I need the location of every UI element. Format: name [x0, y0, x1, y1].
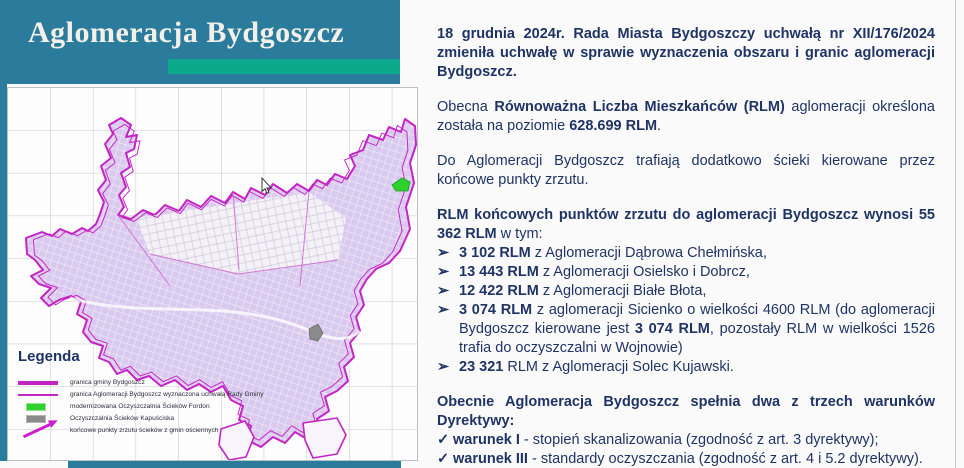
text: w tym: [497, 226, 543, 242]
map-panel: Legenda granica gminy Bydgoszczgranica A… [7, 87, 418, 461]
bullet-item: ➢23 321 RLM z Aglomeracji Solec Kujawski… [437, 358, 935, 377]
text-bold: Obecnie Aglomeracja Bydgoszcz spełnia dw… [437, 394, 935, 429]
bullet-text: warunek I - stopień skanalizowania (zgod… [453, 431, 935, 450]
bullet-text: 3 074 RLM z aglomeracji Sicienko o wielk… [459, 301, 935, 358]
paragraph: Obecnie Aglomeracja Bydgoszcz spełnia dw… [437, 393, 935, 431]
text: z Aglomeracji Dąbrowa Chełmińska, [531, 245, 767, 261]
text-bold: 628.699 RLM [569, 118, 657, 134]
legend-item: modernizowana Oczyszczalnia Ścieków Ford… [18, 401, 348, 412]
bullet-text: 12 422 RLM z Aglomeracji Białe Błota, [459, 282, 935, 301]
paragraph: Do Aglomeracji Bydgoszcz trafiają dodatk… [437, 152, 935, 190]
bullet-text: 13 443 RLM z Aglomeracji Osielsko i Dobr… [459, 263, 935, 282]
bullet-text: 23 321 RLM z Aglomeracji Solec Kujawski. [459, 358, 935, 377]
text-bold: warunek I [453, 432, 520, 448]
title-accent-bar [168, 59, 400, 74]
bullet-text: 3 102 RLM z Aglomeracji Dąbrowa Chełmińs… [459, 244, 935, 263]
map-legend: Legenda granica gminy Bydgoszczgranica A… [18, 348, 348, 437]
legend-item-label: granica Aglomeracji Bydgoszcz wyznaczona… [70, 391, 264, 398]
arrow-bullet-icon: ➢ [437, 301, 459, 358]
content-panel: 18 grudnia 2024r. Rada Miasta Bydgoszczy… [420, 0, 956, 468]
text: - stopień skanalizowania (zgodność z art… [520, 432, 879, 448]
legend-title: Legenda [18, 348, 348, 365]
text: RLM z Aglomeracji Solec Kujawski. [503, 359, 733, 375]
check-item: ✓warunek I - stopień skanalizowania (zgo… [437, 431, 935, 450]
text: - standardy oczyszczania (zgodność z art… [528, 451, 923, 467]
text-bold: 18 grudnia 2024r. Rada Miasta Bydgoszczy… [437, 26, 935, 80]
bullet-item: ➢3 102 RLM z Aglomeracji Dąbrowa Chełmiń… [437, 244, 935, 263]
legend-item: granica Aglomeracji Bydgoszcz wyznaczona… [18, 389, 348, 400]
gray-rect-icon [18, 415, 70, 423]
left-edge-strip [0, 84, 7, 461]
text: z Aglomeracji Osielsko i Dobrcz, [539, 264, 750, 280]
legend-item: granica gminy Bydgoszcz [18, 377, 348, 388]
paragraph: RLM końcowych punktów zrzutu do aglomera… [437, 206, 935, 244]
text-bold: 12 422 RLM [459, 283, 539, 299]
bullet-text: warunek III - standardy oczyszczania (zg… [453, 450, 935, 468]
magenta-arrow-icon [18, 429, 70, 432]
arrow-bullet-icon: ➢ [437, 358, 459, 377]
check-icon: ✓ [437, 431, 453, 450]
arrow-bullet-icon: ➢ [437, 244, 459, 263]
text-bold: warunek III [453, 451, 528, 467]
thick-magenta-line-icon [18, 381, 70, 385]
paragraph: 18 grudnia 2024r. Rada Miasta Bydgoszczy… [437, 25, 935, 82]
check-icon: ✓ [437, 450, 453, 468]
title-block: Aglomeracja Bydgoszcz [0, 0, 400, 84]
text-bold: 3 074 RLM [459, 302, 532, 318]
legend-item-label: końcowe punkty zrzutu ścieków z gmin ośc… [70, 427, 218, 434]
text-bold: 23 321 [459, 359, 503, 375]
bullet-item: ➢3 074 RLM z aglomeracji Sicienko o wiel… [437, 301, 935, 358]
legend-item-label: granica gminy Bydgoszcz [70, 379, 145, 386]
text-bold: Równoważna Liczba Mieszkańców (RLM) [494, 99, 784, 115]
legend-item: Oczyszczalnia Ścieków Kapuściska [18, 413, 348, 424]
bullet-item: ➢13 443 RLM z Aglomeracji Osielsko i Dob… [437, 263, 935, 282]
text: Obecna [437, 99, 494, 115]
page-title: Aglomeracja Bydgoszcz [28, 16, 344, 50]
text-bold: 3 074 RLM [635, 321, 710, 337]
legend-items: granica gminy Bydgoszczgranica Aglomerac… [18, 377, 348, 436]
legend-item-label: modernizowana Oczyszczalnia Ścieków Ford… [70, 403, 210, 410]
presentation-slide: Aglomeracja Bydgoszcz [0, 0, 964, 468]
green-rect-icon [18, 403, 70, 411]
arrow-bullet-icon: ➢ [437, 263, 459, 282]
text-bold: 13 443 RLM [459, 264, 539, 280]
legend-item: końcowe punkty zrzutu ścieków z gmin ośc… [18, 425, 348, 436]
text: z Aglomeracji Białe Błota, [539, 283, 707, 299]
thin-magenta-line-icon [18, 394, 70, 396]
check-item: ✓warunek III - standardy oczyszczania (z… [437, 450, 935, 468]
arrow-bullet-icon: ➢ [437, 282, 459, 301]
bottom-accent-bar [68, 461, 401, 468]
paragraph: Obecna Równoważna Liczba Mieszkańców (RL… [437, 98, 935, 136]
legend-item-label: Oczyszczalnia Ścieków Kapuściska [70, 415, 174, 422]
text: Do Aglomeracji Bydgoszcz trafiają dodatk… [437, 153, 935, 188]
bullet-item: ➢12 422 RLM z Aglomeracji Białe Błota, [437, 282, 935, 301]
text-bold: 3 102 RLM [459, 245, 531, 261]
text: . [657, 118, 661, 134]
